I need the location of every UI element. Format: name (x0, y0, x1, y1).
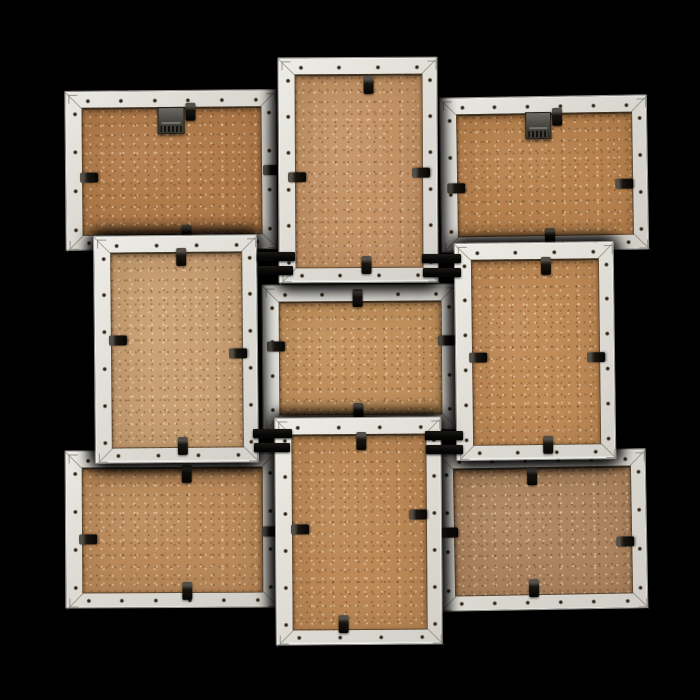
nail-hole (462, 298, 467, 303)
frame-connector-clip (426, 445, 463, 454)
nail-hole (636, 507, 641, 512)
nail-hole (267, 508, 272, 513)
nail-hole (253, 97, 258, 102)
retaining-clip (616, 536, 634, 546)
mdf-backing-panel (279, 300, 443, 415)
corner-notch (636, 452, 645, 461)
corner-notch (97, 240, 106, 249)
nail-hole (221, 597, 226, 602)
nail-hole (515, 450, 520, 455)
nail-hole (85, 98, 90, 103)
nail-hole (463, 368, 468, 373)
corner-notch (268, 239, 277, 248)
frame-connector-clip (258, 266, 293, 275)
nail-hole (462, 333, 467, 338)
corner-notch (247, 238, 256, 247)
nail-hole (247, 328, 252, 333)
retaining-clip (409, 510, 427, 520)
nail-hole (154, 243, 159, 248)
frame-back-bottom-center (274, 416, 443, 645)
retaining-clip (182, 465, 192, 483)
nail-hole (247, 255, 252, 260)
nail-hole (102, 403, 107, 408)
nail-hole (73, 547, 78, 552)
corner-notch (266, 289, 275, 298)
nail-hole (248, 402, 253, 407)
nail-hole (525, 104, 530, 109)
nail-hole (428, 186, 433, 191)
frame-back-top-left (64, 89, 277, 251)
retaining-clip (361, 256, 371, 274)
nail-hole (591, 103, 596, 108)
nail-hole (320, 292, 325, 297)
nail-hole (72, 150, 77, 155)
nail-hole (298, 65, 303, 70)
nail-hole (248, 365, 253, 370)
corner-notch (99, 454, 108, 463)
nail-hole (269, 305, 274, 310)
frame-back-bottom-left (65, 449, 279, 608)
nail-hole (296, 635, 301, 640)
frame-back-top-center (277, 57, 438, 284)
nail-hole (72, 509, 77, 514)
nail-hole (431, 511, 436, 516)
nail-hole (477, 450, 482, 455)
mdf-backing-panel (291, 434, 427, 631)
nail-hole (606, 436, 611, 441)
nail-hole (492, 104, 497, 109)
nail-hole (604, 296, 609, 301)
nail-hole (432, 547, 437, 552)
mdf-backing-panel (453, 465, 633, 596)
nail-hole (101, 293, 106, 298)
nail-hole (445, 549, 450, 554)
nail-hole (414, 64, 419, 69)
nail-hole (270, 407, 275, 412)
nail-hole (459, 105, 464, 110)
mdf-backing-panel (110, 251, 244, 448)
retaining-clip (291, 524, 309, 534)
retaining-clip (185, 103, 195, 121)
corner-notch (433, 634, 442, 643)
nail-hole (195, 452, 200, 457)
nail-hole (637, 585, 642, 590)
mdf-backing-panel (82, 467, 264, 594)
retaining-clip (339, 615, 349, 633)
nail-hole (73, 585, 78, 590)
nail-hole (418, 424, 423, 429)
retaining-clip (182, 582, 192, 600)
retaining-clip (543, 436, 553, 454)
nail-hole (558, 599, 563, 604)
mdf-backing-panel (294, 74, 423, 269)
nail-hole (153, 598, 158, 603)
retaining-clip (587, 352, 605, 362)
nail-hole (234, 242, 239, 247)
frame-back-middle-right (454, 241, 617, 461)
nail-hole (282, 512, 287, 517)
frame-connector-clip (423, 268, 461, 277)
corner-notch (638, 598, 647, 607)
retaining-clip (229, 348, 247, 358)
retaining-clip (412, 168, 430, 178)
nail-hole (626, 239, 631, 244)
nail-hole (155, 453, 160, 458)
nail-hole (525, 600, 530, 605)
nail-hole (592, 599, 597, 604)
nail-hole (603, 262, 608, 267)
nail-hole (101, 330, 106, 335)
nail-hole (299, 273, 304, 278)
nail-hole (446, 304, 451, 309)
nail-hole (552, 249, 557, 254)
nail-hole (448, 229, 453, 234)
nail-hole (267, 226, 272, 231)
nail-hole (427, 77, 432, 82)
corner-notch (637, 98, 646, 107)
corner-notch (442, 602, 451, 611)
nail-hole (625, 598, 630, 603)
nail-hole (337, 65, 342, 70)
nail-hole (444, 511, 449, 516)
retaining-clip (353, 289, 363, 307)
corner-notch (639, 239, 648, 248)
nail-hole (282, 475, 287, 480)
nail-hole (604, 331, 609, 336)
nail-hole (427, 114, 432, 119)
retaining-clip (364, 76, 374, 94)
nail-hole (268, 584, 273, 589)
retaining-clip (178, 437, 188, 455)
retaining-clip (176, 248, 186, 266)
nail-hole (283, 585, 288, 590)
nail-hole (114, 243, 119, 248)
sawtooth-hanger (157, 107, 184, 134)
retaining-clip (79, 534, 97, 544)
nail-hole (622, 456, 627, 461)
nail-hole (428, 223, 433, 228)
nail-hole (115, 453, 120, 458)
corner-notch (70, 241, 79, 250)
frame-connector-clip (254, 443, 290, 452)
nail-hole (282, 292, 287, 297)
corner-notch (606, 449, 615, 458)
nail-hole (464, 437, 469, 442)
frame-back-top-right (439, 94, 649, 252)
nail-hole (285, 151, 290, 156)
nail-hole (461, 263, 466, 268)
nail-hole (235, 452, 240, 457)
frame-connector-clip (422, 254, 461, 263)
corner-notch (431, 420, 440, 429)
nail-hole (375, 64, 380, 69)
nail-hole (376, 272, 381, 277)
nail-hole (219, 97, 224, 102)
corner-notch (604, 245, 613, 254)
nail-hole (255, 597, 260, 602)
nail-hole (101, 256, 106, 261)
nail-hole (513, 250, 518, 255)
nail-hole (378, 634, 383, 639)
nail-hole (590, 249, 595, 254)
nail-hole (377, 424, 382, 429)
nail-hole (72, 471, 77, 476)
nail-hole (118, 98, 123, 103)
nail-hole (474, 250, 479, 255)
nail-hole (73, 227, 78, 232)
nail-hole (419, 634, 424, 639)
nail-hole (102, 366, 107, 371)
corner-notch (68, 95, 77, 104)
nail-hole (447, 372, 452, 377)
nail-hole (623, 102, 628, 107)
nail-hole (637, 152, 642, 157)
retaining-clip (267, 342, 285, 352)
nail-hole (447, 118, 452, 123)
frame-back-middle-left (93, 234, 259, 463)
nail-hole (85, 458, 90, 463)
nail-hole (395, 291, 400, 296)
nail-hole (432, 621, 437, 626)
nail-hole (431, 474, 436, 479)
nail-hole (266, 110, 271, 115)
retaining-clip (447, 183, 465, 193)
nail-hole (267, 470, 272, 475)
sawtooth-hanger (525, 112, 551, 139)
nail-hole (463, 403, 468, 408)
corner-notch (69, 598, 78, 607)
nail-hole (433, 291, 438, 296)
retaining-clip (541, 257, 551, 275)
nail-hole (267, 187, 272, 192)
retaining-clip (109, 335, 127, 345)
nail-hole (415, 272, 420, 277)
nail-hole (86, 598, 91, 603)
nail-hole (266, 148, 271, 153)
frame-connector-clip (253, 429, 292, 438)
corner-notch (249, 452, 258, 461)
nail-hole (637, 115, 642, 120)
retaining-clip (80, 173, 98, 183)
retaining-clip (529, 579, 539, 597)
retaining-clip (440, 527, 458, 537)
nail-hole (432, 584, 437, 589)
nail-hole (447, 155, 452, 160)
nail-hole (492, 600, 497, 605)
nail-hole (194, 242, 199, 247)
frame-connector-clip (257, 252, 295, 261)
nail-hole (427, 150, 432, 155)
retaining-clip (356, 432, 366, 450)
nail-hole (336, 425, 341, 430)
nail-hole (186, 97, 191, 102)
collage-frame-back-photo (0, 0, 700, 700)
nail-hole (605, 366, 610, 371)
nail-hole (247, 292, 252, 297)
nail-hole (270, 373, 275, 378)
nail-hole (120, 598, 125, 603)
corner-notch (280, 635, 289, 644)
nail-hole (268, 546, 273, 551)
nail-hole (459, 601, 464, 606)
nail-hole (593, 449, 598, 454)
corner-notch (69, 454, 78, 463)
nail-hole (638, 226, 643, 231)
nail-hole (72, 111, 77, 116)
retaining-clip (438, 335, 456, 345)
corner-notch (427, 61, 436, 70)
nail-hole (447, 406, 452, 411)
frame-connector-clip (425, 431, 463, 440)
corner-notch (266, 93, 275, 102)
retaining-clip (288, 172, 306, 182)
nail-hole (86, 240, 91, 245)
retaining-clip (527, 467, 537, 485)
nail-hole (152, 98, 157, 103)
nail-hole (635, 469, 640, 474)
nail-hole (73, 189, 78, 194)
nail-hole (638, 189, 643, 194)
nail-hole (338, 273, 343, 278)
retaining-clip (615, 179, 633, 189)
corner-notch (281, 61, 290, 70)
nail-hole (285, 78, 290, 83)
nail-hole (605, 401, 610, 406)
nail-hole (286, 223, 291, 228)
nail-hole (285, 114, 290, 119)
nail-hole (446, 588, 451, 593)
nail-hole (283, 622, 288, 627)
frame-back-bottom-right (436, 448, 649, 612)
nail-hole (248, 439, 253, 444)
corner-notch (443, 101, 452, 110)
retaining-clip (552, 108, 562, 126)
nail-hole (554, 449, 559, 454)
nail-hole (295, 425, 300, 430)
nail-hole (102, 440, 107, 445)
mdf-backing-panel (471, 258, 601, 446)
retaining-clip (469, 353, 487, 363)
nail-hole (283, 548, 288, 553)
nail-hole (337, 635, 342, 640)
nail-hole (637, 546, 642, 551)
frame-back-center (261, 283, 457, 430)
nail-hole (286, 187, 291, 192)
nail-hole (443, 472, 448, 477)
